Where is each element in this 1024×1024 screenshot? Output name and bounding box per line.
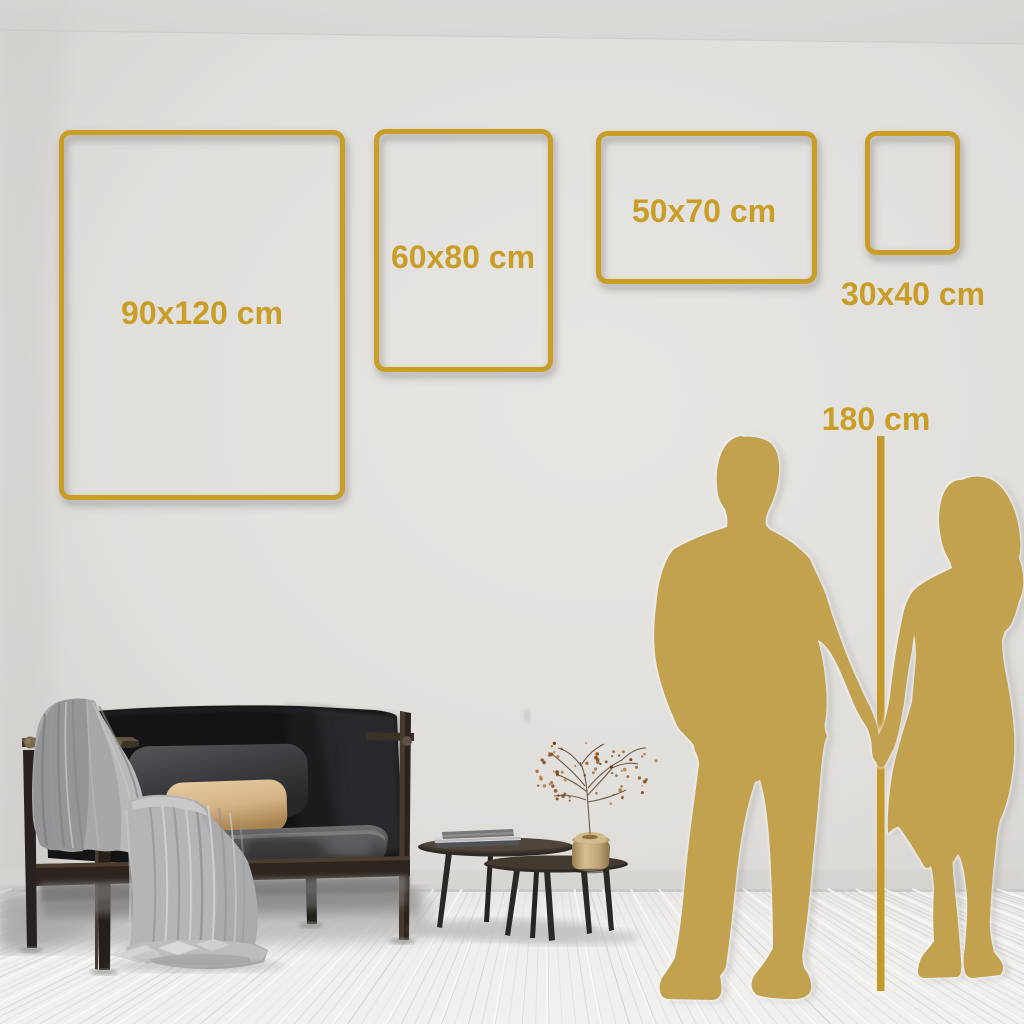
svg-text:50x70 cm: 50x70 cm xyxy=(632,193,776,229)
svg-text:90x120 cm: 90x120 cm xyxy=(121,295,283,331)
svg-text:60x80 cm: 60x80 cm xyxy=(391,239,535,275)
svg-text:30x40 cm: 30x40 cm xyxy=(841,276,985,312)
svg-text:180 cm: 180 cm xyxy=(822,401,931,437)
